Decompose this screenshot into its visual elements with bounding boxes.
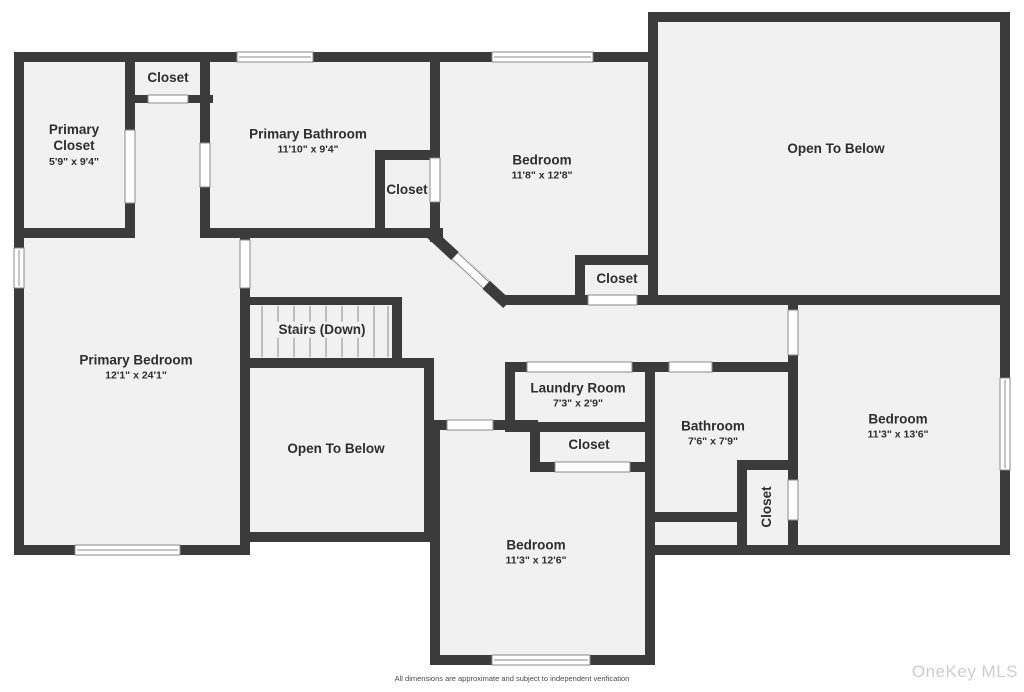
room-dims: 12'1" x 24'1" <box>79 370 192 384</box>
room-name: Closet <box>759 486 775 527</box>
label-stairs: Stairs (Down) <box>273 322 370 338</box>
label-bathroom-closet-2: Closet <box>759 486 775 527</box>
floorplan-canvas: Primary Closet 5'9" x 9'4" Closet Primar… <box>0 0 1024 692</box>
room-name: Open To Below <box>287 441 384 457</box>
watermark-text: OneKey MLS <box>912 662 1018 682</box>
room-dims: 11'8" x 12'8" <box>511 170 572 184</box>
label-bedroom-bottom: Bedroom 11'3" x 12'6" <box>505 537 566 568</box>
label-hall-closet: Closet <box>596 271 637 287</box>
room-dims: 5'9" x 9'4" <box>28 156 120 170</box>
room-name: Primary Bathroom <box>249 126 367 142</box>
label-primary-closet: Primary Closet 5'9" x 9'4" <box>28 122 120 170</box>
label-bedroom-top: Bedroom 11'8" x 12'8" <box>511 152 572 183</box>
room-name: Primary Bedroom <box>79 352 192 368</box>
room-dims: 7'3" x 2'9" <box>530 398 625 412</box>
label-bathroom-closet: Closet <box>386 182 427 198</box>
room-name: Closet <box>568 437 609 453</box>
label-bedroom-closet: Closet <box>568 437 609 453</box>
label-closet-top: Closet <box>147 70 188 86</box>
room-name: Bedroom <box>511 152 572 168</box>
room-name: Closet <box>596 271 637 287</box>
room-name: Primary Closet <box>28 122 120 155</box>
room-name: Bedroom <box>505 537 566 553</box>
room-dims: 11'3" x 13'6" <box>867 429 928 443</box>
room-name: Bedroom <box>867 411 928 427</box>
label-primary-bedroom: Primary Bedroom 12'1" x 24'1" <box>79 352 192 383</box>
room-dims: 11'10" x 9'4" <box>249 144 367 158</box>
room-dims: 11'3" x 12'6" <box>505 555 566 569</box>
label-open-to-below-mid: Open To Below <box>287 441 384 457</box>
room-dims: 7'6" x 7'9" <box>681 436 745 450</box>
room-name: Open To Below <box>787 141 884 157</box>
room-name: Stairs (Down) <box>278 322 365 338</box>
label-bathroom: Bathroom 7'6" x 7'9" <box>681 418 745 449</box>
label-bedroom-right: Bedroom 11'3" x 13'6" <box>867 411 928 442</box>
disclaimer-text: All dimensions are approximate and subje… <box>395 674 630 683</box>
label-primary-bathroom: Primary Bathroom 11'10" x 9'4" <box>249 126 367 157</box>
room-name: Bathroom <box>681 418 745 434</box>
label-open-to-below-top: Open To Below <box>787 141 884 157</box>
room-name: Laundry Room <box>530 380 625 396</box>
floorplan-drawing <box>0 0 1024 692</box>
room-name: Closet <box>386 182 427 198</box>
label-laundry-room: Laundry Room 7'3" x 2'9" <box>530 380 625 411</box>
room-name: Closet <box>147 70 188 86</box>
